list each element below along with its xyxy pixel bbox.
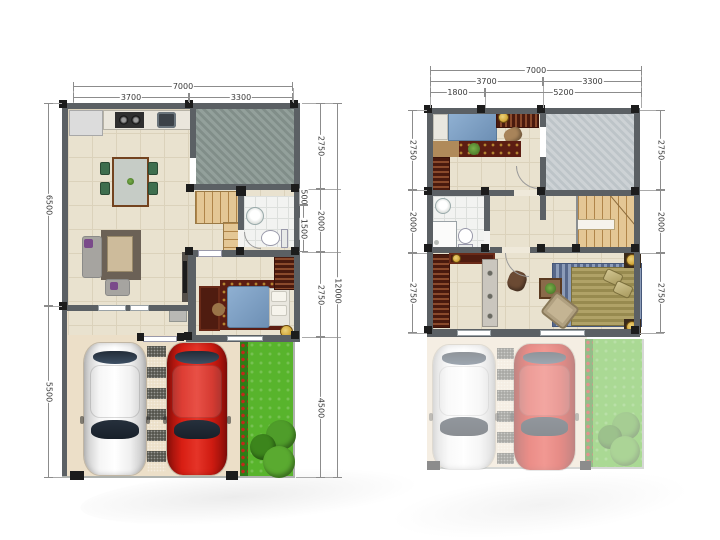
wall-block <box>236 186 246 196</box>
dim-plan1-left-upper: 6500 <box>48 103 49 306</box>
extension-line <box>408 333 427 334</box>
wall-block <box>537 187 545 195</box>
bedroom-window <box>227 336 263 341</box>
dresser <box>482 259 498 327</box>
dim-label: 2750 <box>657 139 666 161</box>
dim-label: 2000 <box>317 209 326 231</box>
dim-plan2-left-2750b: 2750 <box>412 253 413 333</box>
dim-label: 2750 <box>409 139 418 161</box>
lamp <box>452 254 461 263</box>
wall-block <box>137 333 144 341</box>
shower-area <box>431 221 457 250</box>
hall-door-opening <box>514 190 539 196</box>
dim-label: 2000 <box>657 210 666 232</box>
dim-plan2-left-2000: 2000 <box>412 190 413 253</box>
carport-wall-left <box>62 311 67 476</box>
wall-block <box>291 184 299 192</box>
master-wall-top <box>427 247 640 253</box>
dim-plan1-right-1500: 1500 <box>303 205 304 252</box>
living-front-wall <box>62 305 196 311</box>
bookshelf <box>433 255 449 327</box>
carport-post <box>70 471 84 480</box>
bedroom-door <box>198 250 222 257</box>
garden-bush <box>598 412 642 466</box>
patio-door-opening <box>190 158 196 184</box>
dim-label: 500 <box>300 188 309 205</box>
wall-block <box>424 187 432 195</box>
dim-plan2-right-2000: 2000 <box>660 190 661 253</box>
dim-label: 2750 <box>317 283 326 305</box>
extension-line <box>543 83 544 108</box>
front-window <box>457 330 491 336</box>
dim-label: 3700 <box>120 93 142 102</box>
dim-plan1-width-right: 3300 <box>189 97 293 98</box>
wall-block <box>291 331 299 339</box>
car-mirror <box>510 413 514 421</box>
dim-plan1-right-2750b: 2750 <box>320 252 321 337</box>
stair-landing-rail <box>578 220 614 229</box>
front-window <box>130 305 149 311</box>
dim-label: 5200 <box>552 88 574 97</box>
bathroom-sink <box>435 198 451 214</box>
dim-label: 3300 <box>581 77 603 86</box>
car-rear-window <box>523 352 567 365</box>
dim-plan1-height-total: 12000 <box>337 103 338 478</box>
exterior-wall-top <box>62 103 300 109</box>
garden-edge <box>642 339 644 468</box>
carport-post <box>580 461 591 470</box>
front-window <box>98 305 126 311</box>
carport-post <box>226 471 238 480</box>
exterior-wall-right <box>634 108 640 337</box>
wall-block <box>631 244 639 252</box>
wall-block <box>177 333 184 341</box>
car-mirror <box>575 413 579 421</box>
dim-label: 12000 <box>334 277 343 304</box>
wall-block <box>185 247 193 255</box>
dim-label: 2750 <box>317 135 326 157</box>
stair-edge <box>576 196 578 250</box>
master-door-opening <box>502 247 530 253</box>
dim-plan1-width-total: 7000 <box>73 86 293 87</box>
flower-border <box>585 339 593 468</box>
terrace-door-opening <box>540 127 546 157</box>
dim-label: 1800 <box>446 88 468 97</box>
dim-label: 4500 <box>317 396 326 418</box>
entry-door <box>143 336 177 342</box>
dim-plan1-right-500: 500 <box>303 189 304 205</box>
exterior-wall-left <box>427 108 433 337</box>
dim-plan2-width-3700: 3700 <box>430 81 543 82</box>
wall-block <box>572 244 580 252</box>
dim-label: 2750 <box>657 282 666 304</box>
hall-wall <box>188 250 196 342</box>
car-windshield <box>521 417 569 436</box>
front-window <box>540 330 585 336</box>
dim-label: 7000 <box>172 82 194 91</box>
wall-block <box>291 247 299 255</box>
dim-plan2-left-2750a: 2750 <box>412 110 413 190</box>
wall-block <box>631 105 639 113</box>
dim-plan1-right-4500: 4500 <box>320 337 321 478</box>
dim-label: 3300 <box>230 93 252 102</box>
dim-plan2-right-2750b: 2750 <box>660 253 661 333</box>
dim-label: 7000 <box>525 66 547 75</box>
car-windshield <box>440 417 488 436</box>
car-mirror <box>429 413 433 421</box>
dim-label: 5500 <box>45 381 54 403</box>
two-storey-house-floor-plans: 7000 3700 3300 6500 5500 500 1500 2750 2… <box>0 0 720 540</box>
shower-drain <box>434 240 439 245</box>
wall-block <box>481 187 489 195</box>
dim-plan1-right-2750a: 2750 <box>320 103 321 189</box>
dim-plan2-width-5200: 5200 <box>485 92 642 93</box>
red-car <box>514 344 575 470</box>
wall-block <box>59 100 67 108</box>
dim-label: 1500 <box>300 217 309 239</box>
carport-post <box>427 461 440 470</box>
dim-label: 2000 <box>409 210 418 232</box>
wall-block <box>477 105 485 113</box>
potted-plant <box>545 283 556 294</box>
bookshelf <box>433 158 449 191</box>
dim-label: 3700 <box>475 77 497 86</box>
bed-blanket <box>448 113 497 141</box>
bed-mattress <box>433 114 448 140</box>
dim-plan1-width-left: 3700 <box>73 97 189 98</box>
hall-stub-wall <box>540 196 546 220</box>
toilet-bowl <box>458 228 473 244</box>
dim-label: 2750 <box>409 282 418 304</box>
wall-block <box>481 244 489 252</box>
white-car <box>433 345 495 469</box>
wall-block <box>631 326 639 334</box>
rug-motif <box>468 143 480 155</box>
wall-block <box>186 184 194 192</box>
wall-block <box>424 244 432 252</box>
exterior-wall-top <box>427 108 640 114</box>
dim-plan2-width-1800: 1800 <box>430 92 485 93</box>
table-centerpiece <box>127 178 134 185</box>
dim-plan2-width-3300: 3300 <box>543 81 642 82</box>
car-roof <box>439 366 490 416</box>
wall-block <box>236 247 244 255</box>
bush-foliage <box>610 436 640 466</box>
dim-plan1-right-2000: 2000 <box>320 189 321 252</box>
wall-block <box>631 187 639 195</box>
dim-plan2-right-2750a: 2750 <box>660 110 661 190</box>
dim-label: 6500 <box>45 193 54 215</box>
extension-line <box>640 333 664 334</box>
car-mirror <box>495 413 499 421</box>
car-roof <box>519 365 569 415</box>
paving-pads <box>497 348 514 465</box>
exterior-wall-left <box>62 103 68 311</box>
car-rear-window <box>442 352 487 364</box>
extension-line <box>293 88 294 103</box>
wall-block <box>184 332 192 340</box>
dim-plan1-left-lower: 5500 <box>48 306 49 478</box>
dim-plan2-width-total: 7000 <box>430 70 642 71</box>
wall-block <box>537 244 545 252</box>
rug-accent <box>433 141 459 157</box>
